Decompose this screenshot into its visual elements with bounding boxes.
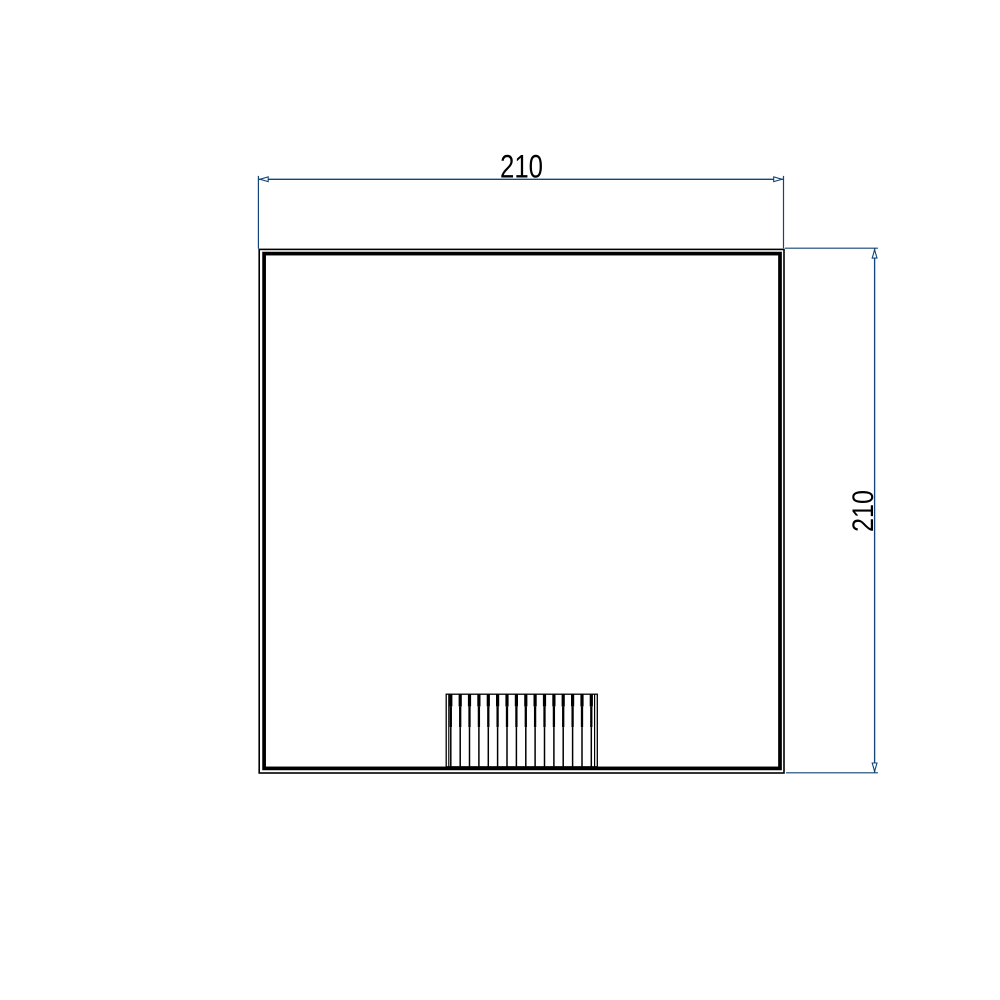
svg-text:210: 210 [500, 149, 543, 185]
svg-text:210: 210 [847, 490, 880, 532]
